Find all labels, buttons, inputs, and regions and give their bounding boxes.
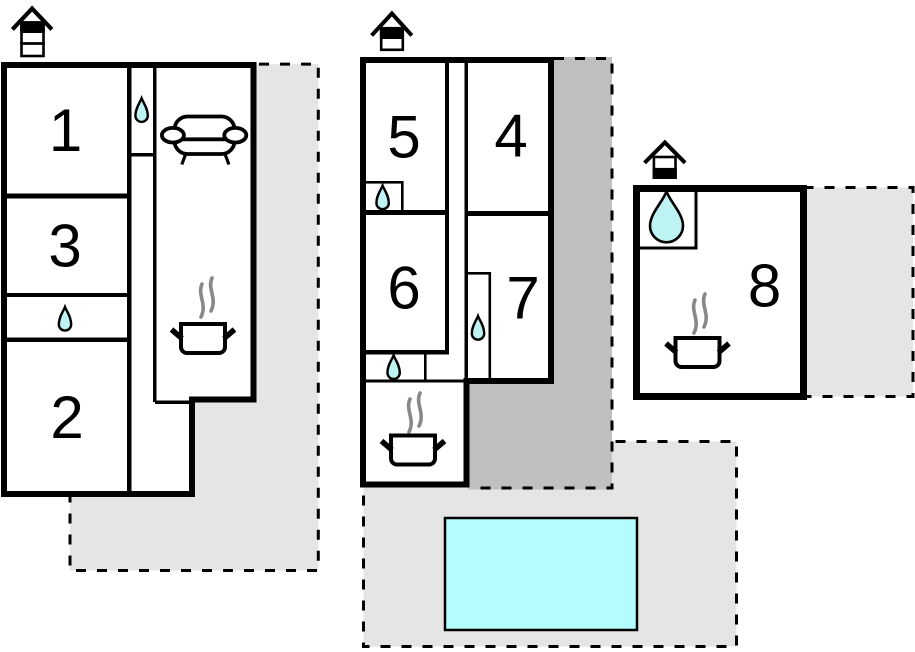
svg-text:7: 7	[506, 265, 539, 332]
svg-text:2: 2	[50, 384, 83, 451]
svg-text:8: 8	[748, 253, 781, 320]
svg-text:5: 5	[387, 104, 420, 171]
svg-text:6: 6	[387, 255, 420, 322]
svg-text:3: 3	[48, 213, 81, 280]
svg-text:4: 4	[494, 103, 527, 170]
svg-text:1: 1	[49, 97, 82, 164]
